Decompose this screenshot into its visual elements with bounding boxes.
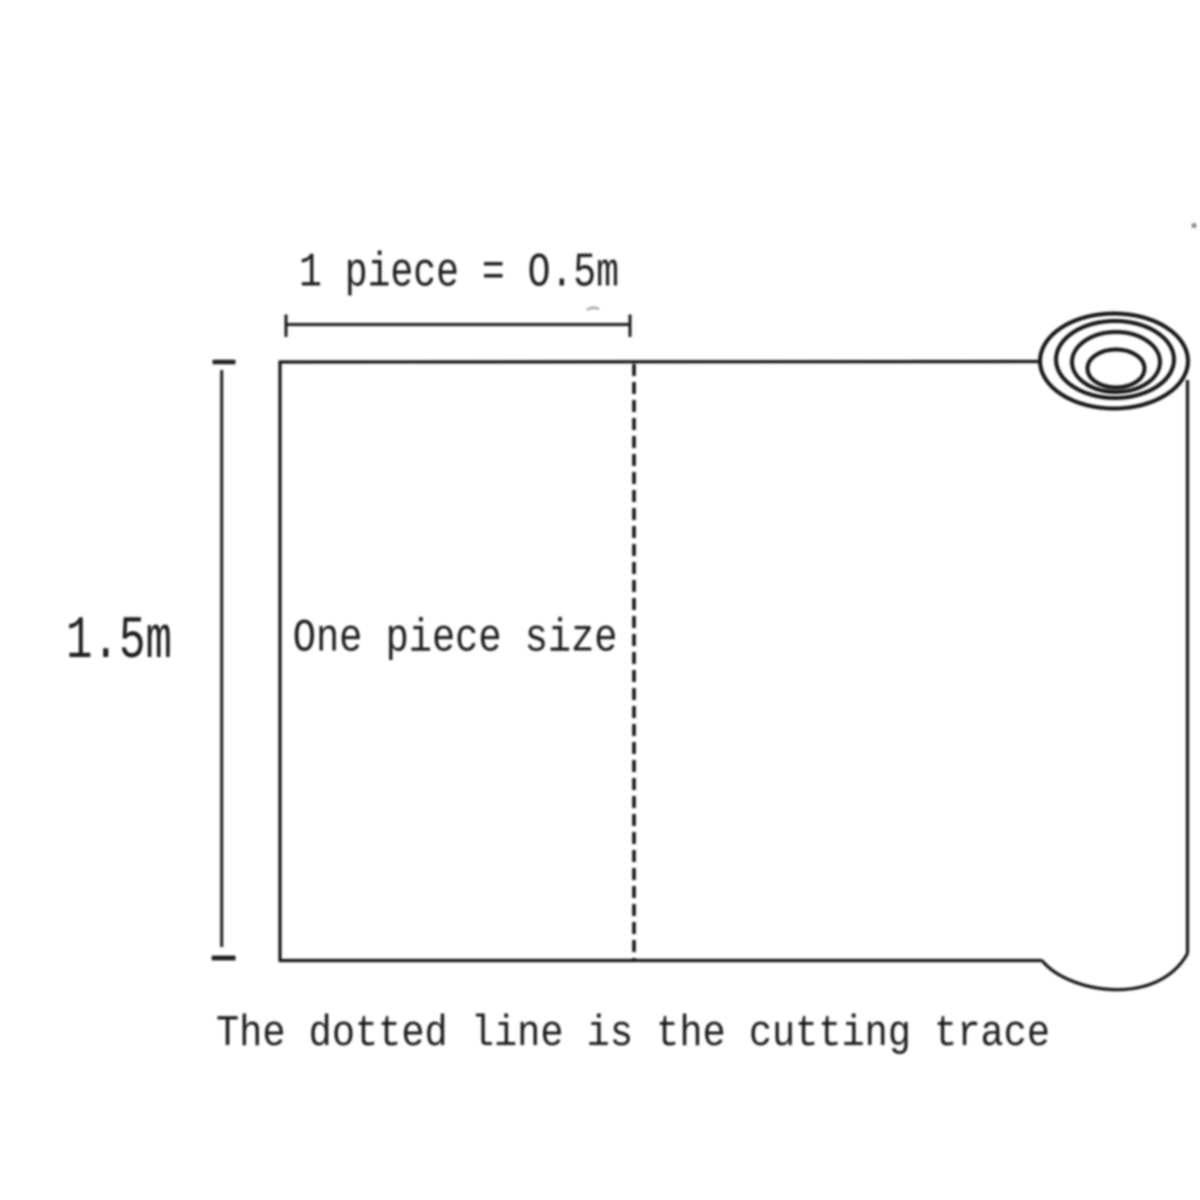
svg-text:The dotted line is the cutting: The dotted line is the cutting trace <box>216 1009 1050 1059</box>
svg-text:1.5m: 1.5m <box>66 608 172 676</box>
svg-text:One piece size: One piece size <box>293 613 618 665</box>
svg-text:1 piece = O.5m: 1 piece = O.5m <box>299 247 619 301</box>
